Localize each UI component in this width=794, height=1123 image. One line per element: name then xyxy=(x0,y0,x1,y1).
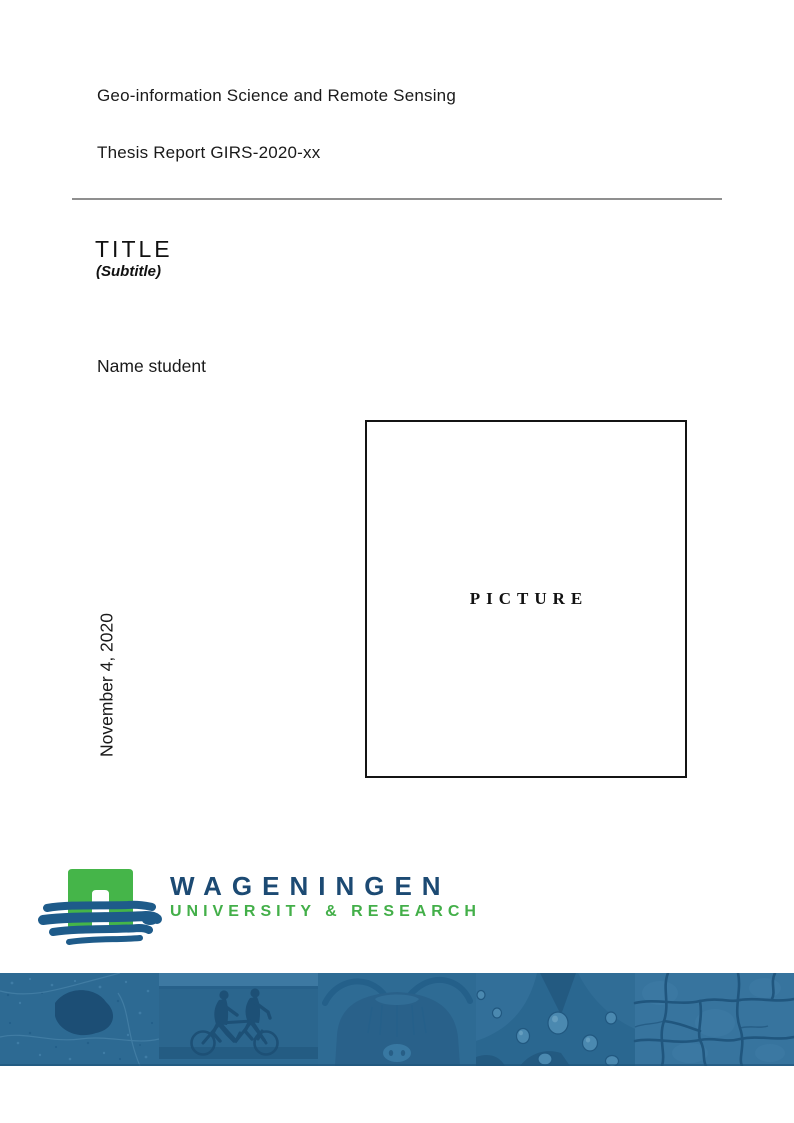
strip-bottom-edge xyxy=(0,1064,794,1066)
leaf-droplets-photo xyxy=(476,973,635,1066)
tandem-cyclists-photo xyxy=(159,973,318,1066)
thesis-cover-page: Geo-information Science and Remote Sensi… xyxy=(0,0,794,1123)
report-date-vertical: November 4, 2020 xyxy=(97,613,118,757)
logo-wordmark-secondary: UNIVERSITY & RESEARCH xyxy=(170,903,481,921)
program-name: Geo-information Science and Remote Sensi… xyxy=(97,86,456,106)
cracked-earth-photo xyxy=(635,973,794,1066)
page-title: TITLE xyxy=(95,236,173,263)
picture-placeholder-label: PICTURE xyxy=(464,589,589,609)
brush-stroke-icon xyxy=(43,905,158,942)
picture-placeholder-box: PICTURE xyxy=(365,420,687,778)
footer-photo-strip xyxy=(0,973,794,1066)
wur-logo-mark-icon xyxy=(38,856,168,958)
report-id: Thesis Report GIRS-2020-xx xyxy=(97,143,320,163)
section-divider xyxy=(72,198,722,200)
highland-cow-photo xyxy=(318,973,476,1066)
page-subtitle: (Subtitle) xyxy=(96,263,161,280)
author-name: Name student xyxy=(97,356,206,377)
logo-wordmark-primary: WAGENINGEN xyxy=(170,871,451,902)
aerial-landscape-photo xyxy=(0,973,159,1066)
